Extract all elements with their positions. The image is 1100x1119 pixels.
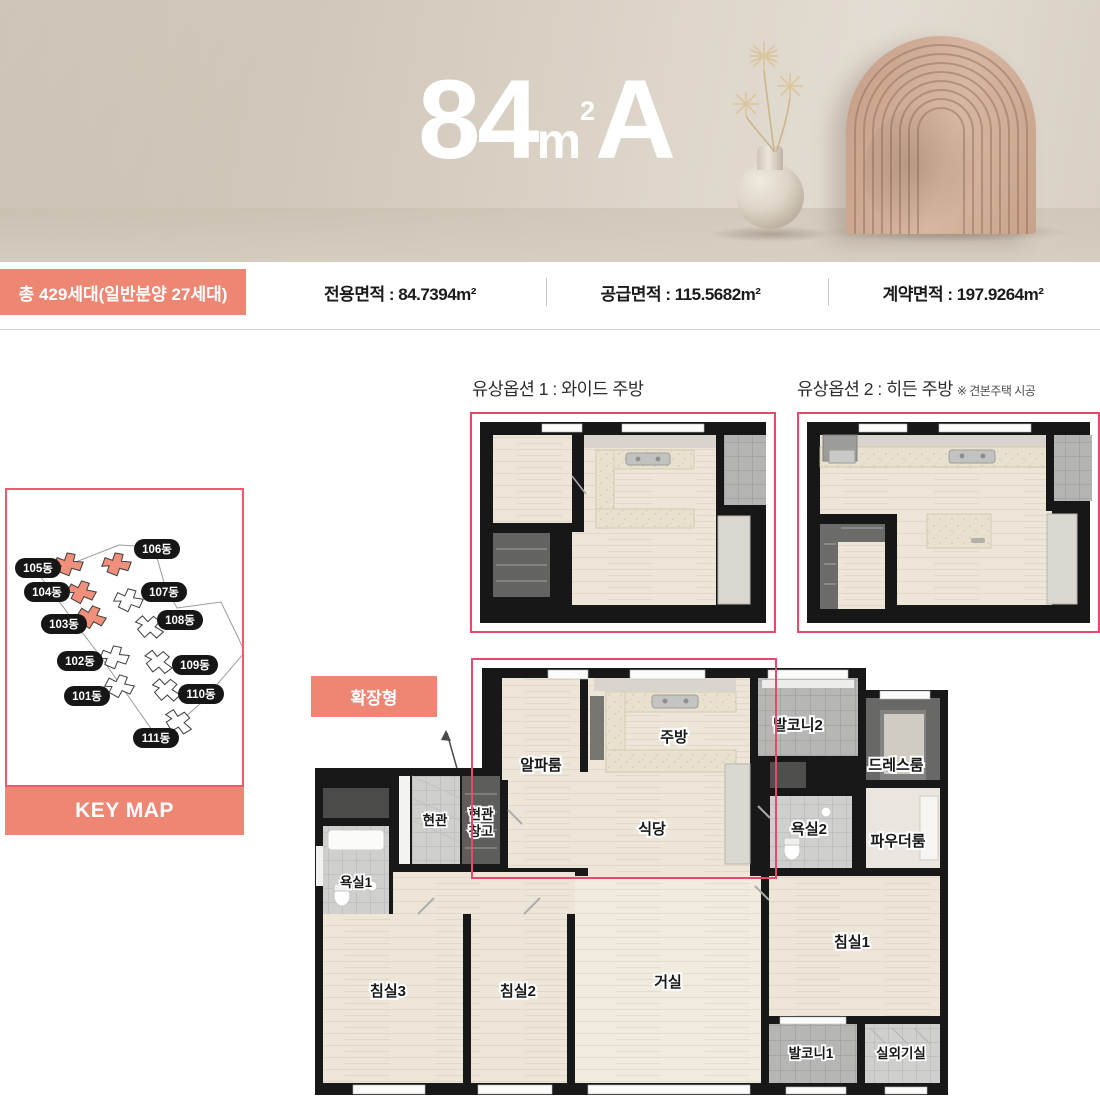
main-floorplan: 알파룸 주방 발코니2 드레스룸 식당 욕실2 파우더룸 현관 현관 창고 욕실… [300, 650, 960, 1115]
label-balcony2: 발코니2 [773, 717, 823, 734]
label-bath2: 욕실2 [791, 821, 827, 838]
option2-plan-box [797, 412, 1100, 633]
divider [828, 278, 829, 306]
title-unit-sup: 2 [580, 96, 595, 126]
hero-title: 84m2A [418, 56, 673, 185]
badge-111: 111동 [142, 732, 171, 745]
dining-cabinet [725, 764, 750, 864]
keymap: 101동 102동 103동 104동 105동 106동 107동 108동 … [7, 490, 242, 785]
divider [546, 278, 547, 306]
label-living: 거실 [654, 974, 682, 991]
badge-101: 101동 [72, 690, 102, 703]
label-alpha: 알파룸 [520, 757, 562, 774]
dried-flowers [700, 28, 850, 178]
option1-plan-box [470, 412, 776, 633]
label-dress: 드레스룸 [868, 757, 923, 774]
option2-note: ※ 견본주택 시공 [957, 384, 1035, 398]
keymap-box: 101동 102동 103동 104동 105동 106동 107동 108동 … [5, 488, 244, 787]
option2-label: 유상옵션 2 : 히든 주방※ 견본주택 시공 [797, 376, 1035, 401]
title-number: 84 [418, 57, 537, 182]
label-entry: 현관 [423, 812, 448, 828]
title-unit: m [537, 113, 580, 169]
badge-105: 105동 [23, 562, 53, 575]
contract-area-text: 계약면적 : 197.9264m² [838, 269, 1088, 315]
option1-plan [472, 414, 774, 631]
building-shape-107 [112, 586, 146, 615]
keymap-title: KEY MAP [5, 787, 244, 835]
label-powder: 파우더룸 [870, 833, 925, 850]
floorplan-page: 84m2A 총 429세대(일반분양 27세대) 전용면적 : 84.7394m… [0, 0, 1100, 1119]
badge-106: 106동 [142, 543, 172, 556]
building-shape-106 [99, 549, 134, 580]
badge-107: 107동 [149, 586, 179, 599]
building-shape-110 [151, 677, 183, 703]
label-bed1: 침실1 [834, 934, 870, 951]
leader-line [441, 730, 458, 772]
section-separator [0, 329, 1100, 330]
supply-area-text: 공급면적 : 115.5682m² [558, 269, 803, 315]
title-suffix: A [595, 57, 673, 182]
left-storage [323, 788, 389, 818]
badge-110: 110동 [186, 688, 216, 701]
building-shape-102 [97, 642, 131, 672]
option2-plan [799, 414, 1098, 631]
label-bed3: 침실3 [370, 983, 406, 1000]
badge-103: 103동 [49, 618, 79, 631]
entry-closet [399, 776, 410, 864]
wood-arch-decor [846, 36, 1036, 234]
household-count-badge: 총 429세대(일반분양 27세대) [0, 269, 246, 315]
label-ac: 실외기실 [876, 1045, 926, 1061]
label-kitchen: 주방 [660, 728, 688, 746]
option1-label: 유상옵션 1 : 와이드 주방 [472, 376, 643, 401]
label-dining: 식당 [638, 820, 666, 838]
site-boundary [40, 545, 242, 740]
exclusive-area-text: 전용면적 : 84.7394m² [280, 269, 520, 315]
badge-102: 102동 [65, 655, 95, 668]
building-shape-109 [142, 648, 175, 676]
room-powder [866, 788, 940, 868]
hero-banner: 84m2A [0, 0, 1100, 262]
label-bath1: 욕실1 [340, 875, 373, 890]
kitchen-backsplash [594, 678, 736, 691]
label-bed2: 침실2 [500, 983, 536, 1000]
badge-108: 108동 [165, 614, 195, 627]
badge-109: 109동 [180, 659, 210, 672]
building-badges: 101동 102동 103동 104동 105동 106동 107동 108동 … [15, 539, 224, 748]
badge-104: 104동 [32, 586, 62, 599]
label-balcony1: 발코니1 [789, 1045, 834, 1061]
fridge [590, 696, 604, 760]
